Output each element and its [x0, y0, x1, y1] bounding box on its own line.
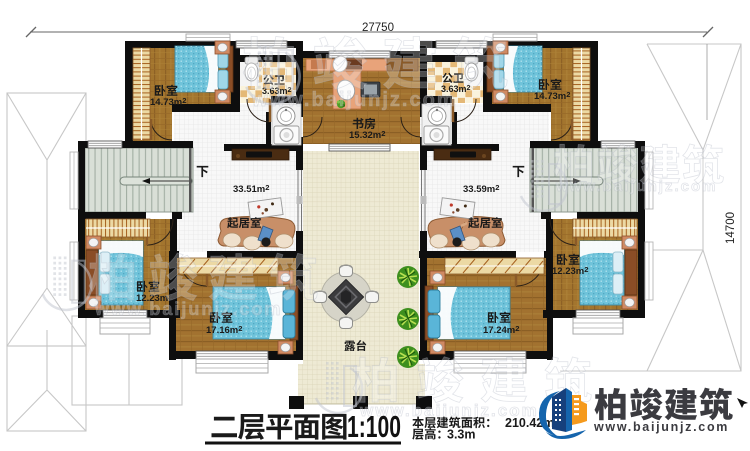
svg-text:210.42m2: 210.42m2 [505, 416, 560, 430]
svg-text:14700: 14700 [725, 212, 737, 244]
svg-text:15.32m2: 15.32m2 [349, 129, 385, 141]
svg-text:14.73m2: 14.73m2 [150, 96, 186, 108]
svg-text:12.23m2: 12.23m2 [552, 265, 588, 277]
svg-text:3.3m: 3.3m [447, 428, 476, 442]
svg-text:www.baijunjz.com: www.baijunjz.com [94, 299, 282, 319]
svg-text:17.16m2: 17.16m2 [206, 324, 242, 336]
svg-text:1:100: 1:100 [347, 410, 401, 444]
svg-text:17.24m2: 17.24m2 [483, 324, 519, 336]
svg-text:27750: 27750 [362, 22, 394, 34]
svg-text:www.baijunjz.com: www.baijunjz.com [251, 89, 457, 111]
svg-text:www.baijunjz.com: www.baijunjz.com [593, 420, 730, 434]
svg-text:www.baijunjz.com: www.baijunjz.com [555, 178, 717, 195]
svg-text:33.59m2: 33.59m2 [463, 183, 499, 195]
svg-text:14.73m2: 14.73m2 [534, 90, 570, 102]
svg-text:33.51m2: 33.51m2 [233, 183, 269, 195]
